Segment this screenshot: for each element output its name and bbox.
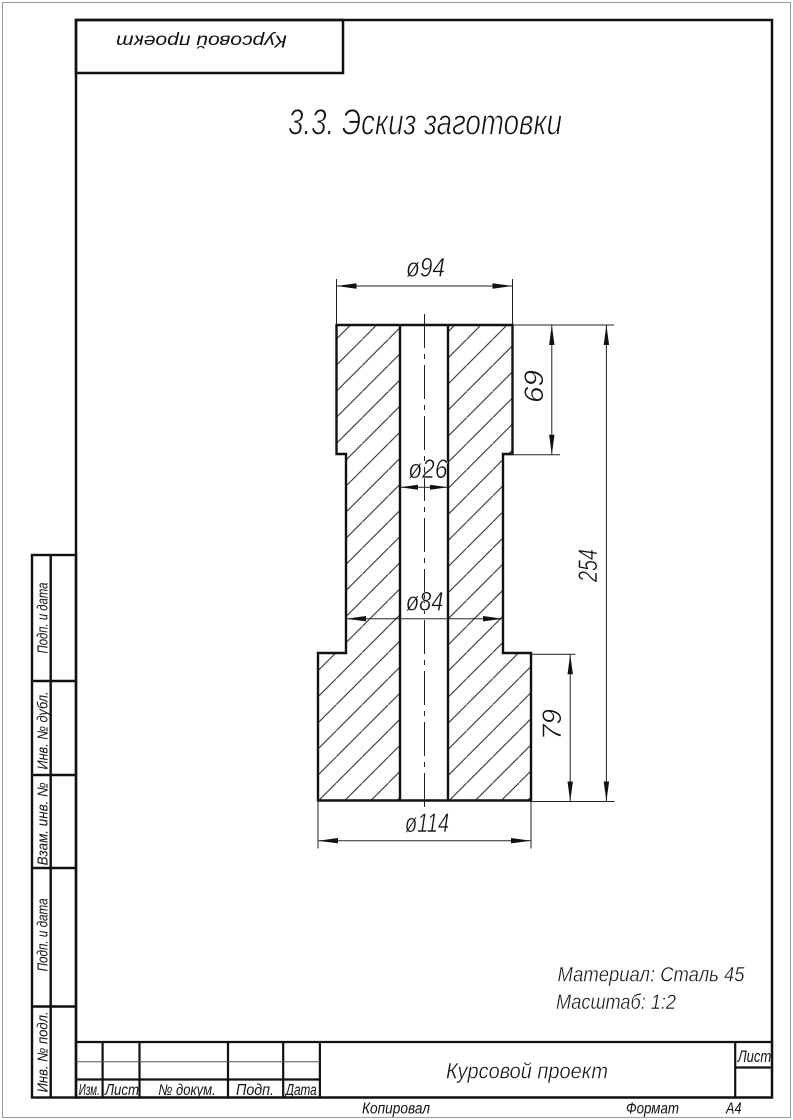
svg-text:Инв. № дубл.: Инв. № дубл. [36,692,52,770]
svg-text:Дата: Дата [284,1082,317,1099]
svg-text:Подп. и дата: Подп. и дата [36,898,52,971]
svg-text:ø94: ø94 [406,253,445,283]
svg-text:Изм.: Изм. [79,1082,100,1099]
svg-text:ø114: ø114 [405,808,449,838]
svg-text:Масштаб: 1:2: Масштаб: 1:2 [556,991,676,1014]
svg-text:69: 69 [519,370,549,403]
svg-text:Курсовой проект: Курсовой проект [116,32,287,52]
svg-text:254: 254 [573,549,603,583]
svg-text:Лист: Лист [104,1082,139,1099]
svg-text:Подп.: Подп. [236,1082,274,1099]
svg-text:Курсовой проект: Курсовой проект [446,1059,608,1084]
svg-text:3.3. Эскиз заготовки: 3.3. Эскиз заготовки [288,102,562,143]
svg-text:79: 79 [537,709,567,740]
svg-text:Взам. инв. №: Взам. инв. № [36,782,52,865]
svg-text:№ докум.: № докум. [158,1082,216,1099]
svg-text:Инв. № подл.: Инв. № подл. [36,1011,52,1092]
svg-text:Копировал: Копировал [362,1101,430,1118]
svg-text:ø84: ø84 [406,587,444,617]
svg-text:Лист: Лист [737,1048,771,1066]
svg-text:ø26: ø26 [408,454,448,484]
svg-text:Формат: Формат [626,1101,679,1118]
svg-text:Подп. и дата: Подп. и дата [36,583,52,654]
svg-text:А4: А4 [725,1101,742,1118]
svg-text:Материал: Сталь 45: Материал: Сталь 45 [558,964,745,987]
